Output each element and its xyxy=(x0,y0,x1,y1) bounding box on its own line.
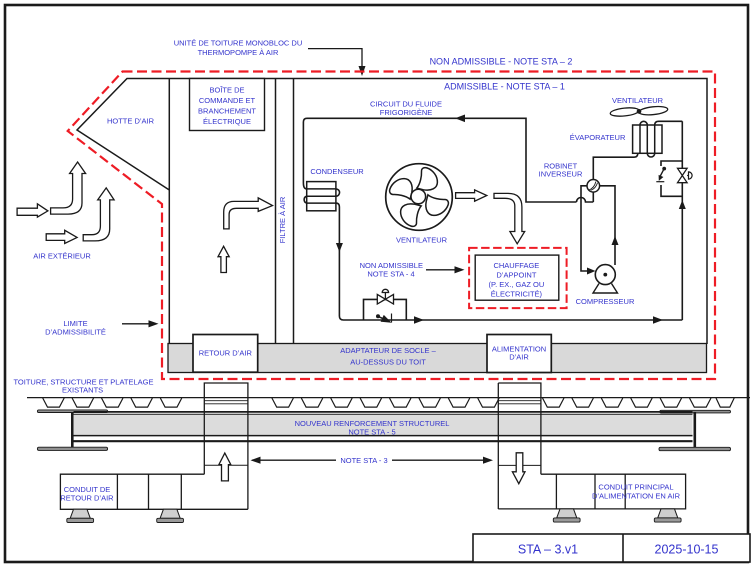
svg-text:COMPRESSEUR: COMPRESSEUR xyxy=(576,297,635,306)
svg-text:CHAUFFAGE: CHAUFFAGE xyxy=(493,261,539,270)
svg-text:ADAPTATEUR DE SOCLE –: ADAPTATEUR DE SOCLE – xyxy=(340,346,436,355)
svg-text:ADMISSIBLE - NOTE STA – 1: ADMISSIBLE - NOTE STA – 1 xyxy=(444,82,565,92)
svg-text:ÉLECTRICITÉ): ÉLECTRICITÉ) xyxy=(491,289,543,298)
svg-text:NOTE STA - 5: NOTE STA - 5 xyxy=(348,428,395,437)
svg-text:NOUVEAU RENFORCEMENT STRUCTURE: NOUVEAU RENFORCEMENT STRUCTUREL xyxy=(295,419,450,428)
svg-text:RETOUR D’AIR: RETOUR D’AIR xyxy=(60,493,114,502)
svg-text:UNITÉ DE TOITURE MONOBLOC DU: UNITÉ DE TOITURE MONOBLOC DU xyxy=(174,38,303,47)
svg-text:BRANCHEMENT: BRANCHEMENT xyxy=(198,107,256,116)
svg-text:D’AIR: D’AIR xyxy=(509,353,529,362)
svg-text:INVERSEUR: INVERSEUR xyxy=(539,170,583,179)
svg-text:THERMOPOMPE À AIR: THERMOPOMPE À AIR xyxy=(198,48,279,57)
svg-text:NOTE STA - 3: NOTE STA - 3 xyxy=(340,456,387,465)
svg-text:D’ALIMENTATION EN AIR: D’ALIMENTATION EN AIR xyxy=(592,492,681,501)
svg-text:D’APPOINT: D’APPOINT xyxy=(496,270,536,279)
svg-text:FILTRE À AIR: FILTRE À AIR xyxy=(278,196,287,243)
svg-text:VENTILATEUR: VENTILATEUR xyxy=(612,96,664,105)
svg-text:ÉVAPORATEUR: ÉVAPORATEUR xyxy=(570,133,626,142)
svg-text:STA – 3.v1: STA – 3.v1 xyxy=(518,543,578,557)
svg-text:CONDUIT PRINCIPAL: CONDUIT PRINCIPAL xyxy=(598,483,673,492)
svg-text:HOTTE D’AIR: HOTTE D’AIR xyxy=(107,117,155,126)
svg-text:FRIGORIGÈNE: FRIGORIGÈNE xyxy=(380,108,433,117)
svg-text:(P. EX., GAZ OU: (P. EX., GAZ OU xyxy=(489,280,545,289)
svg-text:CONDENSEUR: CONDENSEUR xyxy=(310,167,364,176)
svg-text:AU-DESSUS DU TOIT: AU-DESSUS DU TOIT xyxy=(350,358,426,367)
svg-text:2025-10-15: 2025-10-15 xyxy=(655,543,719,557)
svg-text:NON ADMISSIBLE - NOTE STA – 2: NON ADMISSIBLE - NOTE STA – 2 xyxy=(430,57,573,67)
svg-text:D’ADMISSIBILITÉ: D’ADMISSIBILITÉ xyxy=(45,327,106,336)
svg-text:RETOUR D’AIR: RETOUR D’AIR xyxy=(199,349,253,358)
svg-text:AIR EXTÉRIEUR: AIR EXTÉRIEUR xyxy=(33,252,91,261)
svg-text:BOÎTE DE: BOÎTE DE xyxy=(209,86,244,95)
svg-text:COMMANDE ET: COMMANDE ET xyxy=(199,96,256,105)
svg-text:NOTE STA - 4: NOTE STA - 4 xyxy=(367,270,414,279)
svg-text:VENTILATEUR: VENTILATEUR xyxy=(396,236,448,245)
svg-text:EXISTANTS: EXISTANTS xyxy=(62,385,103,394)
svg-text:ÉLECTRIQUE: ÉLECTRIQUE xyxy=(203,117,251,126)
